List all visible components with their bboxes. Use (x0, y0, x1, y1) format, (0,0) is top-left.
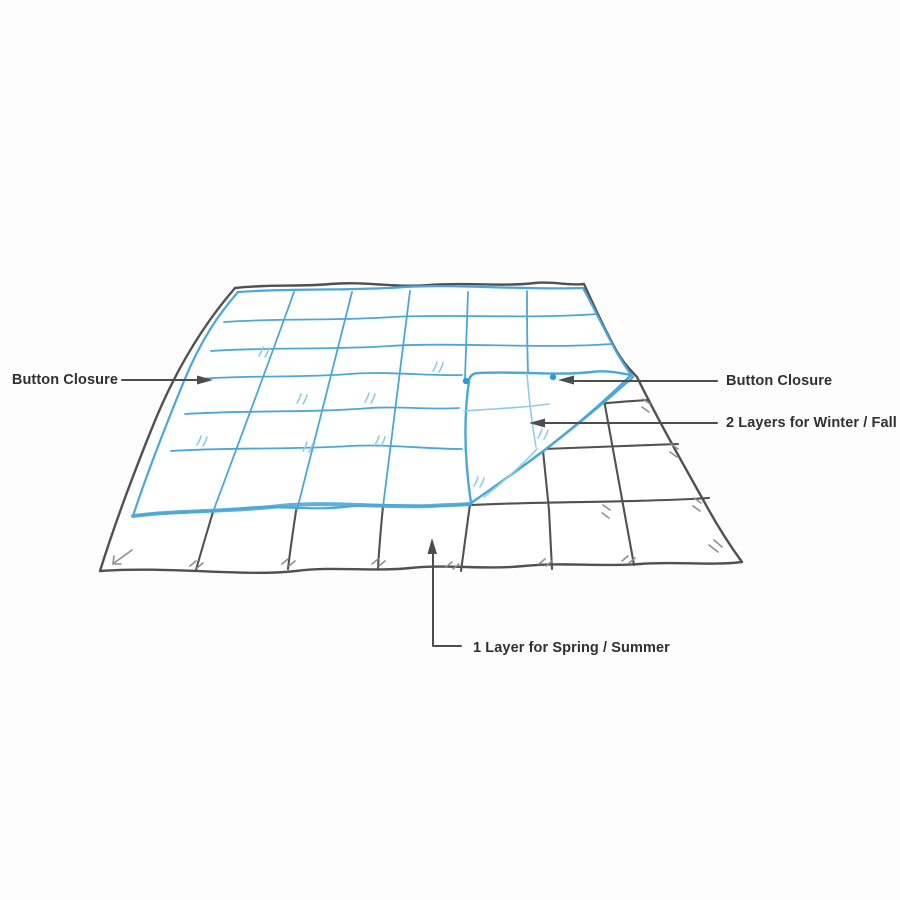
top-layer-quilt-column (527, 291, 528, 372)
comforter-illustration (0, 0, 900, 900)
button-dot (550, 374, 556, 380)
label-button-closure-left: Button Closure (12, 372, 118, 388)
comforter-diagram: Button Closure Button Closure 2 Layers f… (0, 0, 900, 900)
label-button-closure-right: Button Closure (726, 373, 832, 389)
label-winter-layers: 2 Layers for Winter / Fall (726, 415, 897, 431)
callout-arrow-button-closure-left (122, 376, 213, 385)
button-dot (463, 378, 469, 384)
label-summer-layer: 1 Layer for Spring / Summer (473, 640, 670, 656)
